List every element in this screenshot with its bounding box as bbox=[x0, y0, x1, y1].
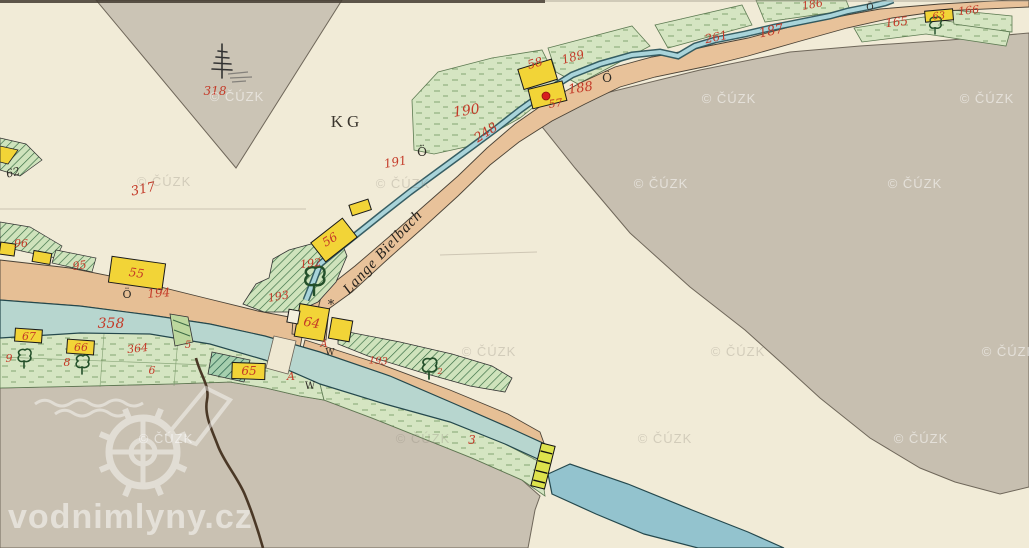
scan-edge bbox=[0, 0, 545, 3]
oe-mark: Ö bbox=[866, 1, 873, 13]
cuzk-watermark: © ČÚZK bbox=[638, 431, 693, 446]
parcel-number-6: 6 bbox=[149, 364, 156, 377]
cuzk-watermark: © ČÚZK bbox=[711, 344, 766, 359]
cuzk-watermark: © ČÚZK bbox=[982, 344, 1029, 359]
cuzk-watermark: © ČÚZK bbox=[376, 176, 431, 191]
building-64b bbox=[328, 317, 352, 341]
house-number-66: 66 bbox=[74, 341, 88, 354]
class-letter-w: W bbox=[305, 381, 316, 392]
house-number-55: 55 bbox=[128, 265, 145, 281]
class-letter-a: A bbox=[286, 370, 295, 383]
parcel-number-95: 95 bbox=[72, 258, 88, 273]
parcel-number-96: 96 bbox=[14, 237, 28, 250]
parcel-number-9: 9 bbox=[6, 352, 13, 365]
cuzk-watermark: © ČÚZK bbox=[634, 176, 689, 191]
oe-mark: Ö bbox=[417, 143, 427, 159]
parcel-number-358: 358 bbox=[98, 316, 125, 332]
site-watermark: vodnimlyny.cz bbox=[8, 498, 253, 536]
asterisk-mark: * bbox=[328, 298, 335, 313]
cuzk-watermark: © ČÚZK bbox=[137, 174, 192, 189]
cuzk-watermark: © ČÚZK bbox=[960, 91, 1015, 106]
house-number-65: 65 bbox=[241, 364, 256, 378]
cadastral-map-canvas: 318 317 62 96 95 55 Ö 194 358 364 5 6 67… bbox=[0, 0, 1029, 548]
house-number-63: 63 bbox=[932, 11, 945, 23]
cuzk-watermark: © ČÚZK bbox=[702, 91, 757, 106]
parcel-number-192: 192 bbox=[300, 256, 322, 271]
parcel-number-166: 166 bbox=[958, 3, 980, 18]
parcel-number-2: 2 bbox=[436, 367, 442, 376]
parcel-number-364: 364 bbox=[127, 341, 149, 356]
building-outbuilding bbox=[287, 309, 300, 324]
cuzk-watermark: © ČÚZK bbox=[396, 431, 451, 446]
house-number-67: 67 bbox=[22, 330, 36, 343]
parcel-number-3: 3 bbox=[468, 433, 476, 447]
parcel-number-193b: 193 bbox=[368, 355, 388, 367]
cuzk-watermark: © ČÚZK bbox=[210, 89, 265, 104]
district-label-kg: KG bbox=[331, 112, 364, 131]
cadastral-map-screenshot: 318 317 62 96 95 55 Ö 194 358 364 5 6 67… bbox=[0, 0, 1029, 548]
parcel-number-165: 165 bbox=[884, 14, 908, 30]
parcel-number-8: 8 bbox=[64, 356, 71, 369]
oe-mark: Ö bbox=[602, 69, 612, 85]
parcel-number-194: 194 bbox=[147, 285, 171, 301]
cuzk-watermark: © ČÚZK bbox=[894, 431, 949, 446]
house-number-64: 64 bbox=[302, 315, 321, 333]
oe-mark: Ö bbox=[122, 287, 131, 301]
class-letter-w: W bbox=[325, 348, 335, 358]
parcel-number-5: 5 bbox=[185, 340, 191, 351]
cuzk-watermark: © ČÚZK bbox=[888, 176, 943, 191]
cuzk-watermark: © ČÚZK bbox=[462, 344, 517, 359]
house-number-57: 57 bbox=[548, 96, 564, 111]
